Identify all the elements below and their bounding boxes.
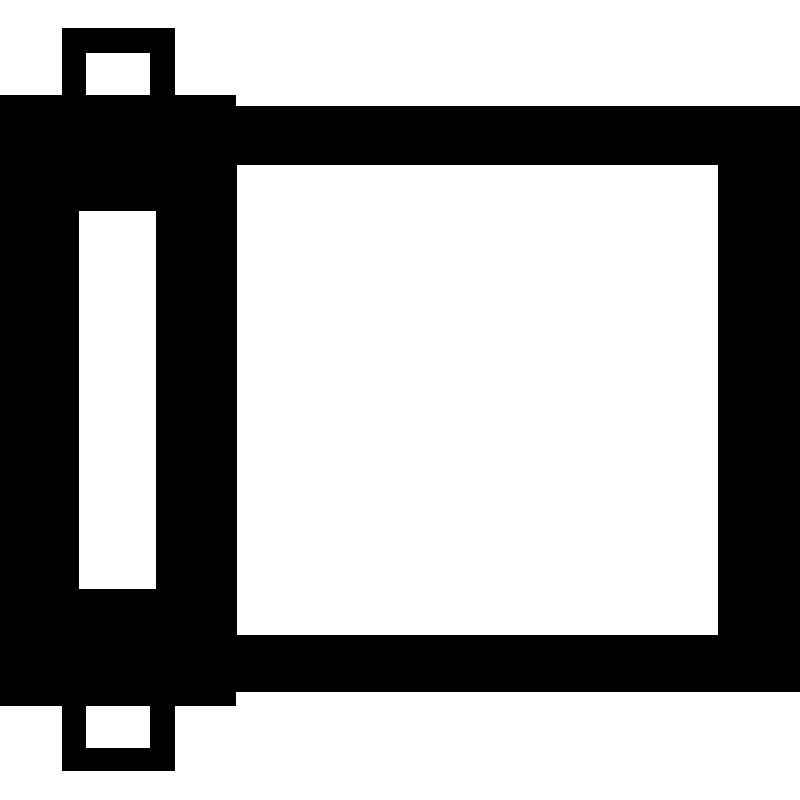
- film-frame-window: [237, 165, 718, 635]
- film-cartridge-label-slot: [79, 211, 156, 589]
- spool-knob-bottom-notch: [86, 706, 150, 748]
- film-roll-icon: [0, 0, 800, 800]
- spool-knob-top-notch: [86, 53, 150, 95]
